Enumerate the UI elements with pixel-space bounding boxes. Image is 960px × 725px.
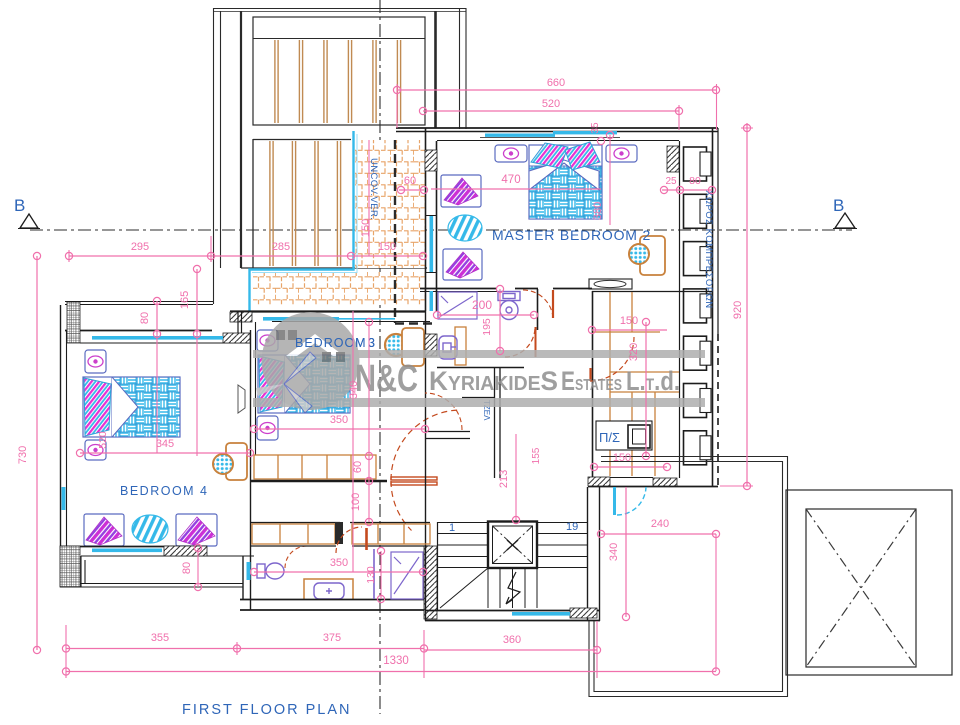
svg-text:360: 360 (503, 634, 521, 646)
svg-text:340: 340 (608, 543, 620, 561)
svg-text:FIRST FLOOR PLAN: FIRST FLOOR PLAN (182, 702, 352, 718)
svg-text:ΧΩΡΟΣ ΚΟΜΠΡΕΣΟΡΩΝ: ΧΩΡΟΣ ΚΟΜΠΡΕΣΟΡΩΝ (703, 190, 714, 309)
svg-text:520: 520 (542, 98, 560, 110)
svg-text:150: 150 (613, 452, 631, 464)
svg-text:N&C: N&C (355, 358, 418, 400)
svg-text:1: 1 (449, 522, 455, 534)
svg-text:BEDROOM 4: BEDROOM 4 (120, 484, 209, 498)
svg-text:60: 60 (404, 175, 416, 187)
svg-text:B: B (14, 196, 25, 215)
svg-text:1330: 1330 (383, 655, 409, 667)
svg-text:200: 200 (472, 298, 492, 312)
svg-text:295: 295 (131, 241, 149, 253)
svg-text:155: 155 (531, 447, 542, 464)
svg-text:730: 730 (17, 446, 29, 464)
svg-text:165: 165 (179, 291, 191, 309)
svg-text:195: 195 (481, 318, 493, 336)
svg-text:350: 350 (330, 557, 348, 569)
svg-text:100: 100 (350, 493, 362, 511)
svg-text:470: 470 (501, 174, 520, 186)
svg-text:920: 920 (732, 301, 744, 319)
svg-text:80: 80 (689, 175, 701, 187)
svg-text:MASTER BEDROOM 2: MASTER BEDROOM 2 (492, 227, 651, 243)
svg-text:660: 660 (547, 77, 565, 89)
svg-text:240: 240 (651, 518, 669, 530)
svg-text:35: 35 (590, 122, 601, 134)
svg-text:60: 60 (352, 461, 364, 473)
svg-text:BEDROOM: BEDROOM (295, 336, 367, 350)
svg-text:80: 80 (139, 312, 151, 324)
svg-text:285: 285 (272, 241, 290, 253)
svg-text:213: 213 (498, 470, 510, 488)
svg-text:350: 350 (330, 414, 348, 426)
svg-text:130: 130 (365, 566, 377, 584)
svg-text:150: 150 (360, 219, 372, 237)
svg-text:Π/Σ: Π/Σ (599, 430, 620, 445)
svg-text:320: 320 (628, 343, 640, 361)
svg-text:25: 25 (665, 176, 677, 187)
svg-text:380: 380 (592, 202, 604, 220)
svg-text:B: B (833, 196, 844, 215)
svg-text:520: 520 (97, 431, 109, 449)
svg-text:80: 80 (181, 562, 193, 574)
svg-text:19: 19 (566, 521, 578, 533)
svg-text:150: 150 (378, 241, 396, 253)
svg-text:340: 340 (348, 381, 360, 399)
svg-text:355: 355 (151, 632, 169, 644)
svg-text:345: 345 (156, 438, 174, 450)
svg-text:UNCOV.VER.: UNCOV.VER. (368, 158, 379, 220)
svg-text:150: 150 (620, 315, 638, 327)
svg-text:375: 375 (323, 632, 341, 644)
